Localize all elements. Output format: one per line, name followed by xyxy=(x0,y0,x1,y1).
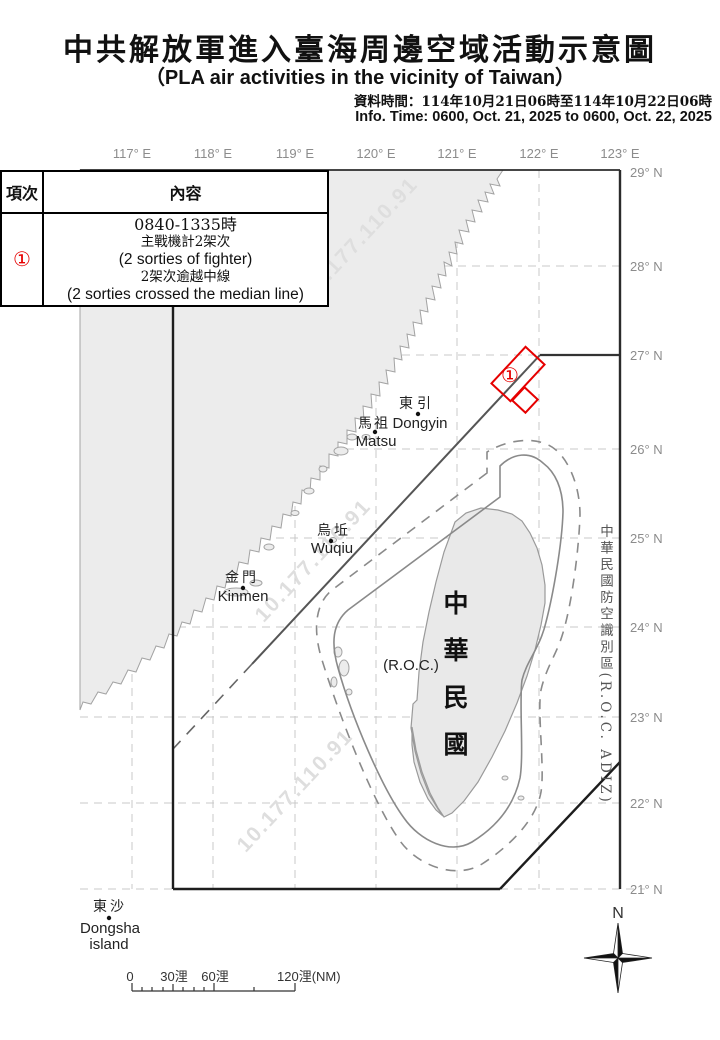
svg-text:Matsu: Matsu xyxy=(356,433,397,450)
taiwan-roc-label: 中華民國 xyxy=(436,590,472,778)
svg-text:23° N: 23° N xyxy=(630,710,663,725)
svg-text:馬祖: 馬祖 xyxy=(358,416,390,432)
compass-rose-icon xyxy=(584,923,652,993)
svg-text:金門: 金門 xyxy=(225,570,259,586)
row-item-number: ① xyxy=(2,214,44,305)
svg-text:東沙: 東沙 xyxy=(93,899,127,915)
svg-text:117° E: 117° E xyxy=(113,146,152,161)
roc-label-en: (R.O.C.) xyxy=(383,657,439,674)
table-row: ① 0840-1335時 主戰機計2架次 (2 sorties of fight… xyxy=(2,214,327,305)
scale-bar-labels: 0 30浬 60浬 120浬(NM) xyxy=(126,969,340,984)
svg-text:26° N: 26° N xyxy=(630,442,663,457)
activity-sorties-zh: 主戰機計2架次 xyxy=(141,234,231,251)
activity-sorties-en: (2 sorties of fighter) xyxy=(119,251,253,269)
svg-text:29° N: 29° N xyxy=(630,165,663,180)
activity-table: 項次 內容 ① 0840-1335時 主戰機計2架次 (2 sorties of… xyxy=(0,170,329,307)
activity-crossing-zh: 2架次逾越中線 xyxy=(141,269,231,286)
svg-text:Kinmen: Kinmen xyxy=(218,588,269,605)
svg-text:30浬: 30浬 xyxy=(160,969,187,984)
svg-text:120° E: 120° E xyxy=(356,146,396,161)
svg-text:東引: 東引 xyxy=(399,396,435,412)
place-matsu: 馬祖 Matsu xyxy=(356,416,397,450)
place-dongsha: 東沙 Dongsha island xyxy=(80,899,141,953)
svg-text:烏坵: 烏坵 xyxy=(317,522,351,539)
svg-text:60浬: 60浬 xyxy=(201,969,228,984)
svg-text:24° N: 24° N xyxy=(630,620,663,635)
svg-text:Dongyin: Dongyin xyxy=(392,415,447,432)
svg-text:island: island xyxy=(89,936,128,953)
svg-text:0: 0 xyxy=(126,969,133,984)
svg-text:25° N: 25° N xyxy=(630,531,663,546)
svg-text:122° E: 122° E xyxy=(519,146,559,161)
svg-text:120浬(NM): 120浬(NM) xyxy=(277,969,341,984)
column-header-item: 項次 xyxy=(2,172,44,212)
svg-text:121° E: 121° E xyxy=(437,146,477,161)
activity-time: 0840-1335時 xyxy=(134,215,237,234)
activity-crossing-en: (2 sorties crossed the median line) xyxy=(67,286,304,304)
taiwan-adiz-map: 10.177.110.91 10.177.110.91 10.177.110.9… xyxy=(0,0,720,1040)
scale-bar xyxy=(132,983,295,991)
table-header-row: 項次 內容 xyxy=(2,172,327,214)
svg-text:28° N: 28° N xyxy=(630,259,663,274)
latitude-labels: 29° N 28° N 27° N 26° N 25° N 24° N 23° … xyxy=(630,165,663,897)
svg-text:Wuqiu: Wuqiu xyxy=(311,540,353,557)
adiz-zone-label: 中華民國防空識別區(R.O.C. ADIZ) xyxy=(595,524,615,805)
row-content-cell: 0840-1335時 主戰機計2架次 (2 sorties of fighter… xyxy=(44,214,327,305)
svg-text:Dongsha: Dongsha xyxy=(80,920,141,937)
place-dongyin: 東引 Dongyin xyxy=(392,396,447,432)
place-wuqiu: 烏坵 Wuqiu xyxy=(311,522,353,557)
longitude-labels: 117° E 118° E 119° E 120° E 121° E 122° … xyxy=(113,146,640,161)
svg-text:123° E: 123° E xyxy=(600,146,640,161)
svg-text:118° E: 118° E xyxy=(194,146,233,161)
svg-text:22° N: 22° N xyxy=(630,796,663,811)
compass-north-label: N xyxy=(612,905,624,922)
svg-text:119° E: 119° E xyxy=(276,146,315,161)
flight-marker-number: ① xyxy=(501,365,519,387)
place-kinmen: 金門 Kinmen xyxy=(218,570,269,605)
svg-text:27° N: 27° N xyxy=(630,348,663,363)
column-header-content: 內容 xyxy=(44,172,327,212)
svg-text:21° N: 21° N xyxy=(630,882,663,897)
